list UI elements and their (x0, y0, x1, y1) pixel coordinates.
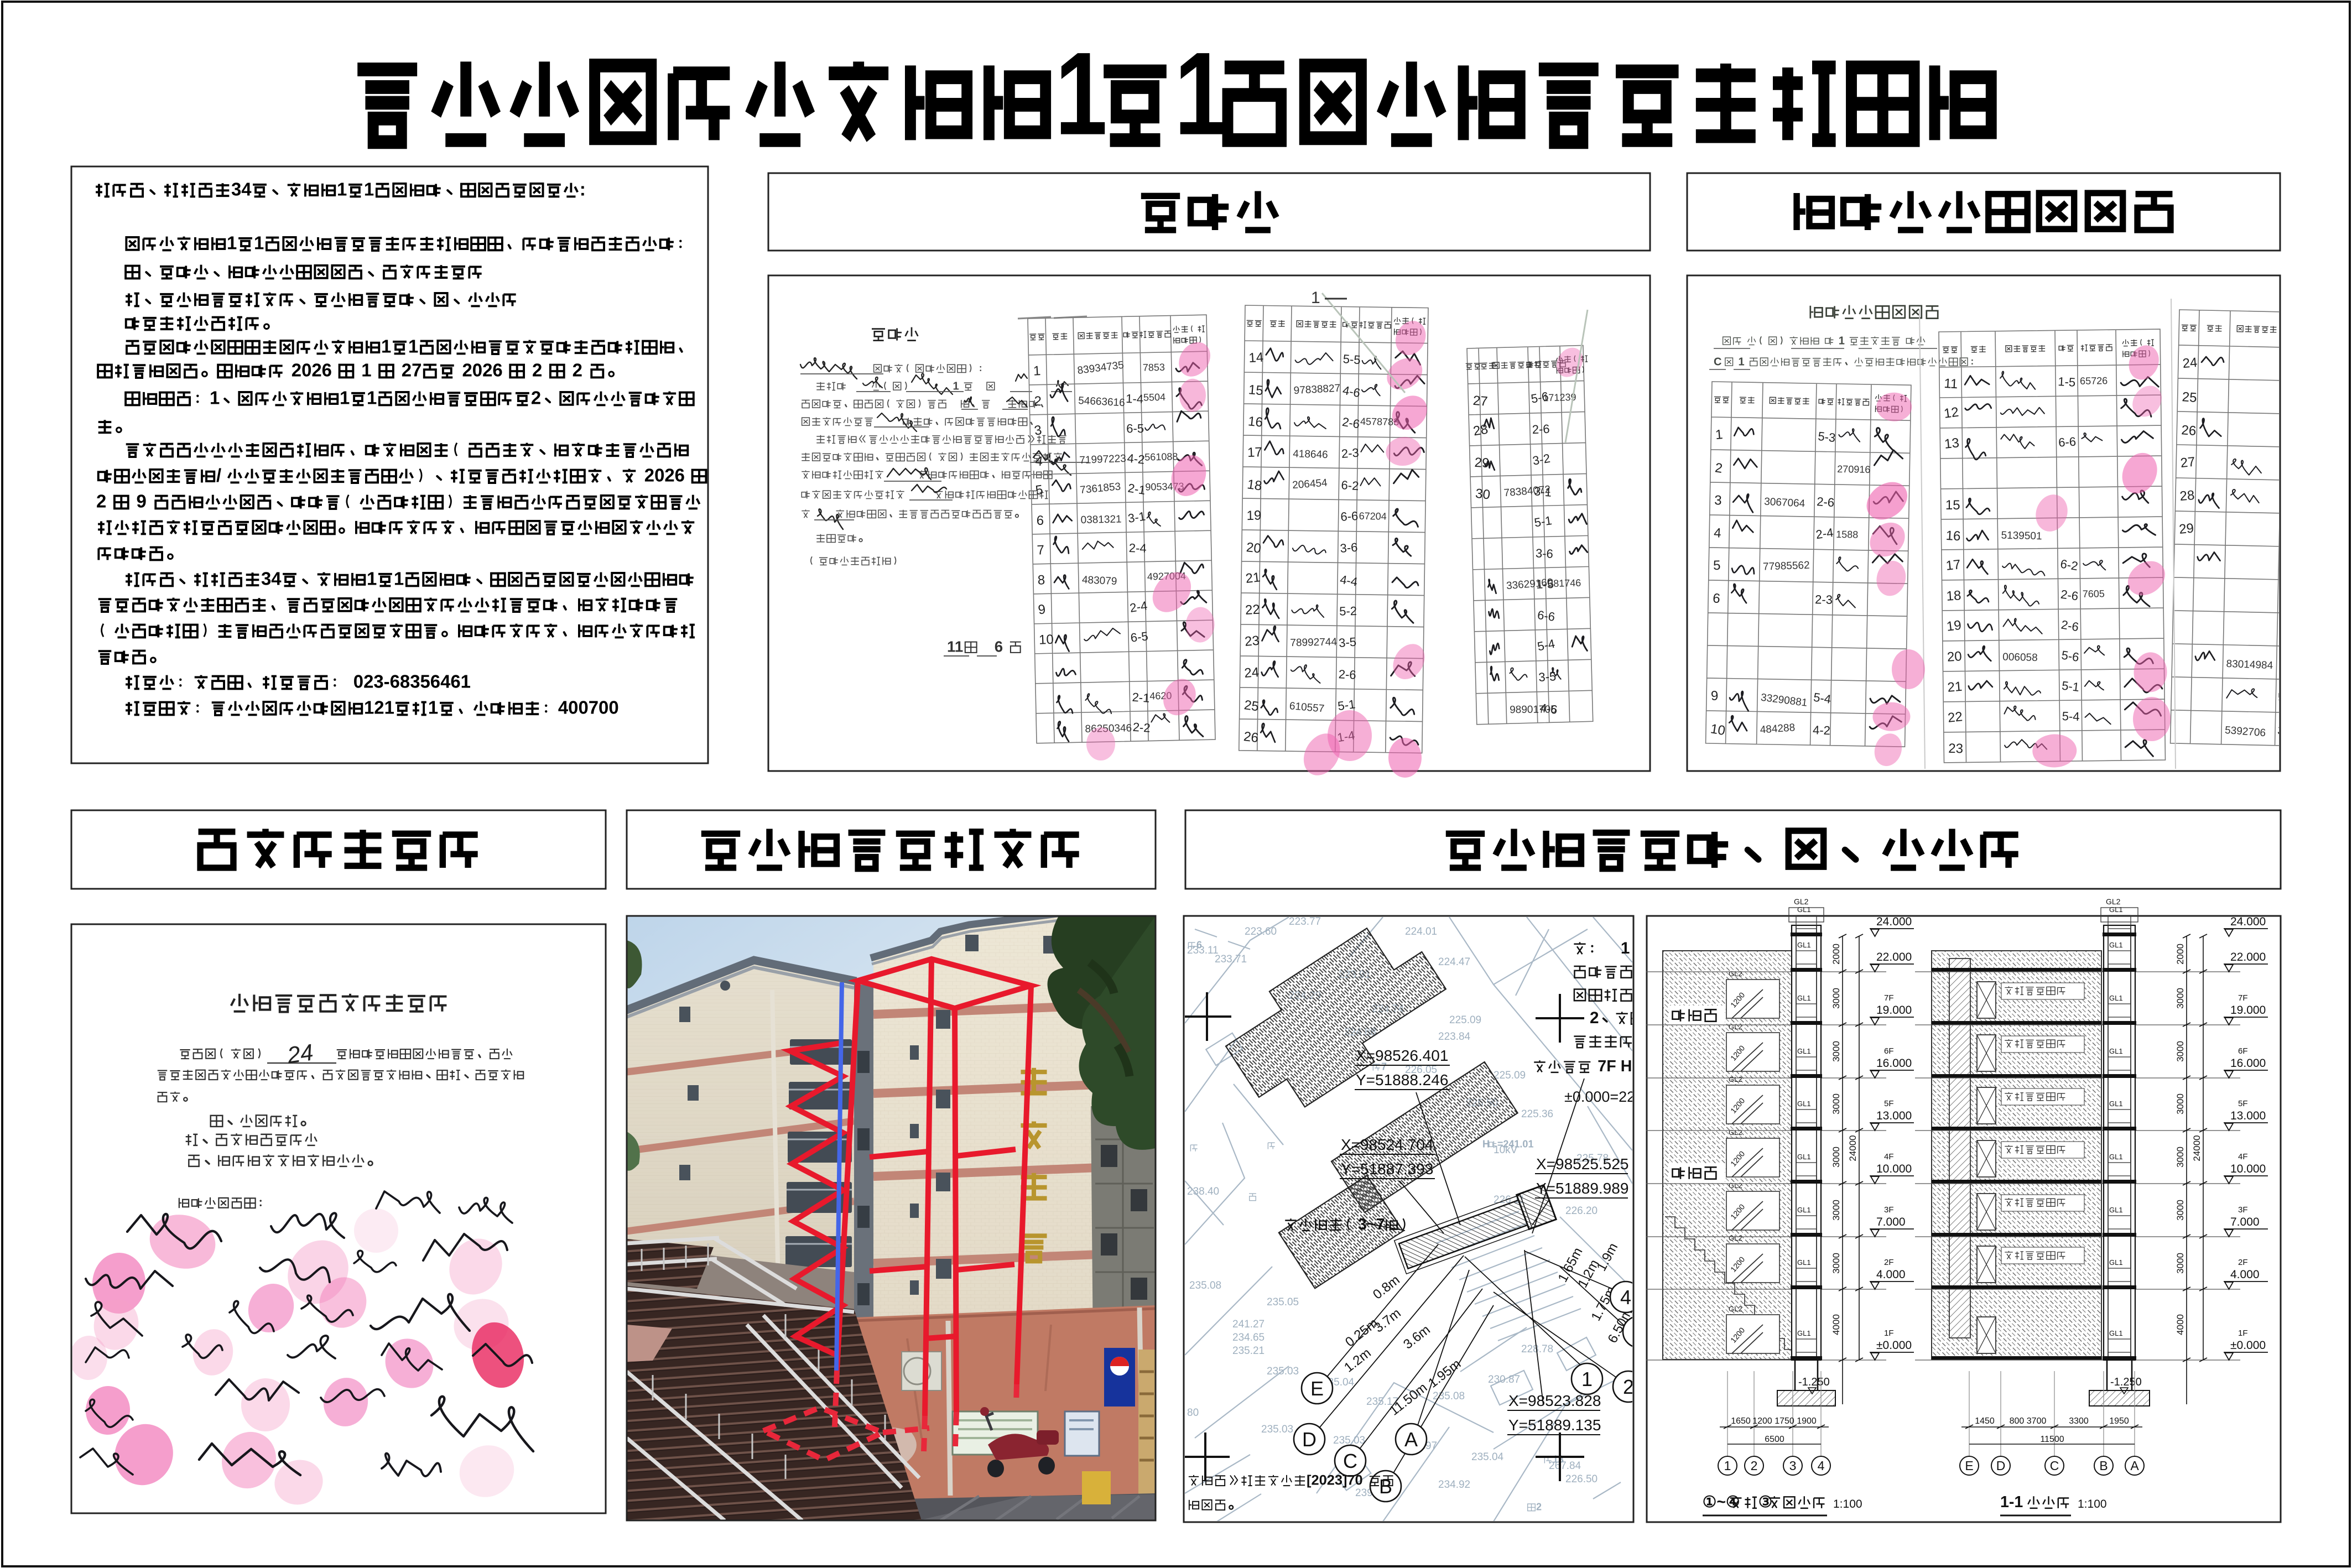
svg-text:4: 4 (1620, 1286, 1631, 1309)
svg-text:1-5: 1-5 (2058, 374, 2076, 389)
svg-text:GL1: GL1 (2109, 1258, 2123, 1267)
svg-text:GL2: GL2 (1794, 897, 1809, 906)
svg-text:1: 1 (394, 569, 404, 589)
svg-text:233.71: 233.71 (1215, 954, 1247, 965)
svg-text:5-5: 5-5 (1342, 352, 1361, 367)
svg-text:E: E (1310, 1377, 1324, 1400)
svg-text:5-1: 5-1 (1533, 513, 1553, 529)
svg-text:3F: 3F (1884, 1205, 1894, 1215)
svg-text:1: 1 (1311, 289, 1320, 307)
svg-text:15: 15 (1248, 382, 1264, 398)
svg-text:4.000: 4.000 (1876, 1268, 1906, 1281)
svg-text:30: 30 (1475, 486, 1491, 503)
svg-text:226.20: 226.20 (1565, 1205, 1598, 1217)
svg-text:7F: 7F (1598, 1058, 1616, 1075)
svg-text:2: 2 (531, 388, 541, 408)
svg-text:235.05: 235.05 (1267, 1296, 1299, 1308)
svg-text:6-2: 6-2 (1341, 478, 1359, 493)
svg-text:±0.000: ±0.000 (1876, 1339, 1912, 1352)
svg-text:484288: 484288 (1760, 722, 1796, 736)
svg-text:3: 3 (1714, 493, 1722, 508)
svg-text:235.08: 235.08 (1433, 1390, 1465, 1402)
svg-text:1: 1 (1724, 1458, 1731, 1473)
svg-text:16.000: 16.000 (1876, 1057, 1912, 1070)
svg-text:2-6: 2-6 (2060, 618, 2079, 634)
svg-text:235.03: 235.03 (1261, 1424, 1293, 1435)
svg-text:2-3: 2-3 (1815, 592, 1833, 607)
svg-text:3000: 3000 (2175, 988, 2186, 1009)
svg-text:GL2: GL2 (1729, 1128, 1742, 1137)
svg-text:1: 1 (227, 233, 237, 253)
svg-text:±0.000: ±0.000 (2230, 1339, 2266, 1352)
svg-text:3000: 3000 (1831, 1093, 1841, 1114)
svg-text:1F: 1F (1884, 1329, 1894, 1338)
svg-text:16.000: 16.000 (2230, 1057, 2266, 1070)
svg-text:3000: 3000 (1831, 1253, 1841, 1274)
svg-text:34: 34 (231, 179, 252, 200)
svg-text:1: 1 (1581, 1368, 1593, 1390)
svg-text:4F: 4F (2238, 1152, 2248, 1161)
svg-text:Y=51888.246: Y=51888.246 (1356, 1071, 1448, 1088)
svg-text:3000: 3000 (1831, 1147, 1841, 1168)
svg-text:1: 1 (361, 360, 371, 381)
svg-text:26: 26 (1243, 729, 1260, 746)
svg-text:GL2: GL2 (1729, 1075, 1742, 1083)
svg-text:21: 21 (1947, 679, 1963, 695)
svg-text:4-6: 4-6 (1539, 701, 1558, 717)
svg-text:20: 20 (1947, 649, 1962, 665)
svg-text:1: 1 (364, 179, 374, 200)
svg-text:7F: 7F (1884, 993, 1894, 1003)
svg-text:5-2: 5-2 (1339, 604, 1357, 618)
svg-text:6F: 6F (1884, 1046, 1894, 1056)
svg-text:3-1: 3-1 (1533, 484, 1552, 499)
svg-text:71997223: 71997223 (1079, 453, 1126, 466)
svg-text:C: C (1714, 356, 1722, 368)
svg-text:4-4: 4-4 (1339, 572, 1359, 589)
svg-text:6-6: 6-6 (1537, 608, 1556, 624)
svg-text:2026: 2026 (462, 360, 503, 381)
svg-text:22: 22 (1947, 709, 1963, 726)
svg-text:GL1: GL1 (1797, 1100, 1811, 1108)
svg-text:235.03: 235.03 (1267, 1366, 1299, 1377)
svg-text:GL1: GL1 (2109, 1100, 2123, 1108)
svg-text:2F: 2F (2238, 1258, 2248, 1267)
svg-text:5504: 5504 (1143, 392, 1165, 403)
svg-text:2: 2 (1590, 1009, 1599, 1027)
svg-text:230.87: 230.87 (1488, 1374, 1520, 1385)
svg-text:1650: 1650 (1731, 1416, 1751, 1426)
svg-text:2-1: 2-1 (1132, 690, 1150, 705)
svg-text:1-4: 1-4 (1126, 392, 1144, 406)
svg-text:12: 12 (1943, 404, 1960, 421)
svg-text:1450: 1450 (1975, 1416, 1995, 1426)
svg-text:16: 16 (1247, 414, 1263, 430)
svg-text:5-1: 5-1 (2061, 679, 2080, 694)
svg-text:2-6: 2-6 (1817, 494, 1835, 509)
svg-text:3000: 3000 (2175, 1200, 2186, 1221)
svg-text:6F: 6F (2238, 1046, 2248, 1056)
svg-text:GL1: GL1 (2109, 1329, 2123, 1337)
svg-text:GL2: GL2 (1729, 1305, 1742, 1313)
svg-text:GL2: GL2 (1729, 1234, 1742, 1242)
svg-text:2: 2 (96, 491, 106, 512)
svg-text:2-4: 2-4 (1129, 541, 1147, 555)
svg-text:4: 4 (1714, 525, 1722, 541)
svg-text:1: 1 (1839, 335, 1845, 347)
svg-text:GL1: GL1 (2109, 941, 2123, 949)
svg-text:10kV: 10kV (1494, 1144, 1518, 1156)
svg-text:270916: 270916 (1837, 463, 1870, 475)
svg-text:238.40: 238.40 (1187, 1186, 1219, 1197)
svg-text:GL1: GL1 (2109, 1153, 2123, 1161)
svg-text:1: 1 (381, 336, 391, 357)
svg-text:233.11: 233.11 (1187, 945, 1219, 956)
svg-text:5139501: 5139501 (2001, 530, 2042, 543)
svg-text:223.84: 223.84 (1438, 1031, 1471, 1043)
svg-text:11: 11 (1944, 376, 1958, 392)
svg-text:H: H (1482, 1139, 1490, 1150)
svg-text:77985562: 77985562 (1763, 560, 1810, 573)
svg-text:225.09: 225.09 (1449, 1014, 1481, 1026)
svg-text:19: 19 (1246, 508, 1261, 524)
svg-text:23: 23 (1948, 741, 1963, 757)
svg-text:4000: 4000 (1831, 1314, 1841, 1335)
svg-text:13.000: 13.000 (2230, 1109, 2266, 1122)
svg-text:3000: 3000 (2175, 1147, 2186, 1168)
svg-text:1: 1 (408, 336, 418, 357)
svg-text:-1.250: -1.250 (1798, 1376, 1830, 1388)
svg-text:GL1: GL1 (1797, 994, 1811, 1002)
svg-text:21: 21 (1245, 570, 1261, 586)
svg-text:561088: 561088 (1144, 451, 1178, 462)
svg-text:10: 10 (1039, 632, 1054, 648)
svg-text:235.04: 235.04 (1471, 1451, 1504, 1463)
svg-text:234.65: 234.65 (1232, 1332, 1265, 1343)
svg-text:225.09: 225.09 (1494, 1070, 1526, 1081)
svg-text:226.50: 226.50 (1565, 1473, 1598, 1485)
svg-text:27: 27 (402, 360, 422, 381)
svg-text:GL2: GL2 (1729, 1023, 1742, 1031)
svg-text:GL1: GL1 (1797, 905, 1811, 914)
svg-text:A: A (2130, 1458, 2139, 1473)
svg-text:24.000: 24.000 (2230, 915, 2266, 928)
svg-text:121: 121 (364, 697, 394, 718)
svg-text:67204: 67204 (1359, 510, 1387, 522)
svg-text:GL2: GL2 (1729, 1181, 1742, 1190)
svg-text:3000: 3000 (2175, 1041, 2186, 1062)
svg-text:4000: 4000 (2175, 1314, 2186, 1335)
svg-text::: : (580, 179, 586, 200)
svg-text:235.08: 235.08 (1189, 1280, 1221, 1291)
svg-text:006058: 006058 (2002, 652, 2038, 664)
svg-text:11500: 11500 (2040, 1435, 2064, 1444)
svg-text:1900: 1900 (1797, 1416, 1817, 1426)
svg-text:24: 24 (2182, 355, 2198, 371)
svg-text:C: C (2050, 1458, 2059, 1473)
svg-text:224.01: 224.01 (1405, 926, 1437, 937)
svg-text:3300: 3300 (2069, 1416, 2089, 1426)
svg-text:224.47: 224.47 (1438, 956, 1470, 968)
svg-text:381746: 381746 (1548, 577, 1581, 590)
svg-text:16: 16 (1945, 528, 1961, 544)
svg-text:3-5: 3-5 (1338, 635, 1357, 650)
svg-text:6: 6 (995, 638, 1003, 655)
svg-text:[2023]70: [2023]70 (1307, 1473, 1363, 1488)
svg-text:225.36: 225.36 (1521, 1108, 1553, 1120)
svg-text:5-4: 5-4 (2062, 709, 2080, 723)
svg-text:13.000: 13.000 (1876, 1109, 1912, 1122)
svg-text:X=98524.704: X=98524.704 (1341, 1136, 1433, 1153)
svg-text:1: 1 (1174, 27, 1227, 159)
svg-text:234.92: 234.92 (1438, 1479, 1470, 1491)
svg-text:Y=51887.393: Y=51887.393 (1341, 1160, 1433, 1178)
svg-text:3-2: 3-2 (1532, 451, 1551, 468)
svg-text:X=98525.525: X=98525.525 (1536, 1155, 1628, 1173)
svg-text:2F: 2F (1884, 1258, 1894, 1267)
svg-text:24: 24 (1244, 665, 1260, 681)
svg-text:3: 3 (1789, 1458, 1797, 1473)
svg-text:2-3: 2-3 (1341, 446, 1360, 461)
svg-text:1: 1 (1715, 427, 1724, 442)
svg-text:1: 1 (1055, 27, 1107, 159)
svg-text:5-6: 5-6 (2060, 648, 2080, 664)
svg-text:2-6: 2-6 (2060, 587, 2079, 603)
svg-text:19.000: 19.000 (2230, 1004, 2266, 1017)
svg-text:2-6: 2-6 (1341, 415, 1361, 431)
svg-text:25: 25 (1243, 697, 1260, 714)
svg-text:GL1: GL1 (2109, 994, 2123, 1002)
svg-text:400700: 400700 (558, 697, 619, 718)
svg-text:1: 1 (1621, 939, 1630, 957)
svg-text:1:100: 1:100 (1833, 1498, 1862, 1510)
svg-text:17: 17 (1247, 445, 1263, 460)
svg-text:6-6: 6-6 (2058, 435, 2076, 450)
svg-text:3000: 3000 (2175, 1093, 2186, 1114)
svg-text:29: 29 (2178, 520, 2194, 537)
svg-text:34: 34 (261, 569, 282, 589)
svg-text:418646: 418646 (1293, 448, 1328, 461)
svg-text:223.60: 223.60 (1245, 926, 1277, 937)
svg-text:1: 1 (210, 388, 220, 408)
svg-text:6-5: 6-5 (1126, 421, 1144, 435)
svg-text:24000: 24000 (2192, 1135, 2202, 1161)
svg-text:Y=51889.135: Y=51889.135 (1508, 1416, 1601, 1434)
svg-text:483079: 483079 (1082, 574, 1117, 587)
svg-text:B: B (2099, 1458, 2108, 1473)
svg-text:8: 8 (1037, 572, 1045, 587)
svg-text:2026: 2026 (644, 465, 685, 486)
svg-text:28: 28 (1472, 422, 1489, 439)
svg-text:24.000: 24.000 (1876, 915, 1912, 928)
svg-text:GL1: GL1 (1797, 941, 1811, 949)
svg-text:2-2: 2-2 (1132, 720, 1151, 735)
svg-text:5F: 5F (1884, 1099, 1894, 1108)
svg-text:1588: 1588 (1836, 529, 1858, 540)
svg-text:1: 1 (367, 569, 377, 589)
svg-text:3000: 3000 (1831, 1041, 1841, 1062)
svg-text:241.27: 241.27 (1232, 1319, 1265, 1330)
svg-text:GL2: GL2 (1729, 970, 1742, 978)
svg-text:9: 9 (137, 491, 147, 512)
svg-text:4-2: 4-2 (1127, 451, 1146, 467)
svg-text:2-6: 2-6 (1532, 422, 1550, 436)
svg-text:3000: 3000 (2175, 1253, 2186, 1274)
svg-text:24000: 24000 (1848, 1135, 1858, 1161)
svg-text:223.77: 223.77 (1289, 916, 1321, 928)
svg-text:5-4: 5-4 (1813, 690, 1832, 706)
svg-text:9: 9 (1710, 689, 1718, 704)
svg-text:24: 24 (285, 1039, 315, 1069)
svg-text:27: 27 (1472, 393, 1489, 409)
svg-text:14: 14 (1248, 350, 1264, 366)
svg-text:4F: 4F (1884, 1152, 1894, 1161)
svg-text:4.000: 4.000 (2230, 1268, 2260, 1281)
svg-text:1: 1 (953, 380, 959, 392)
svg-text:A: A (1404, 1428, 1418, 1451)
svg-text:B: B (1379, 1475, 1392, 1498)
svg-text:GL1: GL1 (1797, 1153, 1811, 1161)
svg-text:18: 18 (1946, 588, 1961, 604)
svg-text:83014984: 83014984 (2226, 658, 2273, 671)
svg-text:1-1: 1-1 (2000, 1493, 2023, 1511)
svg-text:2-1: 2-1 (1127, 481, 1146, 497)
svg-text:7853: 7853 (1143, 362, 1165, 373)
svg-text:23: 23 (1244, 633, 1260, 649)
svg-text:10.000: 10.000 (2230, 1163, 2266, 1175)
svg-text:6-6: 6-6 (1340, 509, 1359, 524)
svg-text:7.000: 7.000 (1876, 1216, 1906, 1228)
svg-text:2-6: 2-6 (1338, 667, 1356, 682)
svg-text:6: 6 (1037, 513, 1044, 528)
svg-text:X=98526.401: X=98526.401 (1356, 1047, 1448, 1064)
svg-text:2: 2 (1034, 394, 1042, 409)
svg-text:GL1: GL1 (1797, 1329, 1811, 1337)
svg-text:E: E (1965, 1458, 1973, 1473)
svg-text:Y=51889.989: Y=51889.989 (1536, 1180, 1628, 1197)
svg-text:C: C (1343, 1450, 1357, 1472)
svg-text:18: 18 (1246, 477, 1263, 493)
svg-text:GL2: GL2 (2106, 897, 2121, 906)
svg-text:1: 1 (1739, 356, 1745, 368)
svg-text:3-1: 3-1 (1127, 509, 1146, 525)
svg-text:1: 1 (1033, 363, 1041, 379)
svg-text:27: 27 (2180, 454, 2196, 471)
svg-text:3000: 3000 (1831, 988, 1841, 1009)
svg-text:4-2: 4-2 (1813, 723, 1831, 737)
svg-text:6-5: 6-5 (1130, 629, 1148, 644)
svg-text:GL1: GL1 (2109, 1047, 2123, 1055)
svg-text:6: 6 (1712, 591, 1721, 606)
svg-text:023-68356461: 023-68356461 (353, 671, 471, 692)
svg-text:GL1: GL1 (1797, 1258, 1811, 1267)
svg-text:7605: 7605 (2083, 588, 2105, 599)
svg-text:GL1: GL1 (2109, 1206, 2123, 1214)
svg-text:11: 11 (947, 638, 963, 655)
svg-text:17: 17 (1945, 557, 1961, 574)
svg-text:-1.250: -1.250 (2110, 1376, 2142, 1388)
svg-text:54663616: 54663616 (1078, 395, 1125, 409)
svg-text:5F: 5F (2238, 1099, 2248, 1108)
svg-text:3067064: 3067064 (1764, 496, 1805, 510)
svg-text:20: 20 (1246, 540, 1262, 556)
svg-text:/: / (216, 465, 221, 486)
svg-text:22.000: 22.000 (1876, 951, 1912, 963)
svg-text:267.84: 267.84 (1549, 1460, 1581, 1472)
svg-text:10: 10 (1709, 721, 1726, 738)
svg-text:15: 15 (1945, 498, 1960, 513)
svg-text:2026: 2026 (292, 360, 332, 381)
svg-text:25: 25 (2182, 389, 2198, 405)
svg-text:7: 7 (1037, 543, 1045, 558)
svg-text:2: 2 (1751, 1458, 1758, 1473)
svg-text:1: 1 (337, 179, 347, 200)
svg-text:2: 2 (532, 360, 542, 381)
svg-text:5-3: 5-3 (1817, 429, 1836, 445)
svg-text:3-5: 3-5 (1538, 669, 1557, 684)
svg-text:2: 2 (1536, 1502, 1542, 1513)
svg-text:7F: 7F (2238, 993, 2248, 1003)
svg-text:1: 1 (428, 697, 438, 718)
svg-text:235.21: 235.21 (1232, 1345, 1265, 1357)
svg-text:GL1: GL1 (2109, 905, 2123, 914)
svg-text:5: 5 (1713, 558, 1721, 573)
svg-text:1: 1 (340, 388, 350, 408)
svg-text:80: 80 (1187, 1407, 1199, 1419)
svg-text:800 3700: 800 3700 (2010, 1416, 2047, 1426)
svg-text:2: 2 (573, 360, 582, 381)
svg-text:7.000: 7.000 (2230, 1216, 2260, 1228)
svg-text:13: 13 (1944, 435, 1960, 452)
svg-text:1950: 1950 (2109, 1416, 2129, 1426)
svg-text:1200 1750: 1200 1750 (1752, 1416, 1794, 1426)
svg-text:10.000: 10.000 (1876, 1163, 1912, 1175)
svg-text:22.000: 22.000 (2230, 951, 2266, 963)
svg-text:③: ③ (1758, 1493, 1773, 1511)
svg-text:4: 4 (1818, 1458, 1825, 1473)
svg-text:3-6: 3-6 (1536, 546, 1554, 560)
svg-text:19.000: 19.000 (1876, 1004, 1912, 1017)
svg-text:1F: 1F (2238, 1329, 2248, 1338)
svg-text:22: 22 (1245, 602, 1260, 618)
svg-text:3000: 3000 (1831, 1200, 1841, 1221)
svg-text:D: D (1996, 1458, 2006, 1473)
svg-text:28: 28 (2179, 488, 2195, 504)
svg-text:26: 26 (2181, 423, 2197, 439)
svg-text:2-4: 2-4 (1815, 525, 1834, 541)
svg-text:D: D (1302, 1428, 1317, 1451)
svg-text:171239: 171239 (1543, 392, 1576, 404)
svg-text:2000: 2000 (1831, 944, 1841, 965)
svg-text:78992744: 78992744 (1290, 636, 1337, 649)
svg-text:1:100: 1:100 (2078, 1498, 2107, 1510)
svg-text:6500: 6500 (1765, 1435, 1784, 1444)
svg-text:6-2: 6-2 (2059, 557, 2079, 574)
svg-text:1: 1 (367, 388, 377, 408)
svg-text:0381321: 0381321 (1080, 514, 1121, 527)
svg-text:19: 19 (1946, 618, 1963, 634)
svg-text:3F: 3F (2238, 1205, 2248, 1215)
svg-text:1: 1 (254, 233, 264, 253)
svg-text:2-4: 2-4 (1129, 598, 1148, 615)
svg-text:65726: 65726 (2080, 375, 2108, 387)
svg-text:GL1: GL1 (1797, 1047, 1811, 1055)
svg-text:2000: 2000 (2175, 944, 2186, 965)
svg-text:GL1: GL1 (1797, 1206, 1811, 1214)
svg-text:3-6: 3-6 (1340, 540, 1359, 555)
